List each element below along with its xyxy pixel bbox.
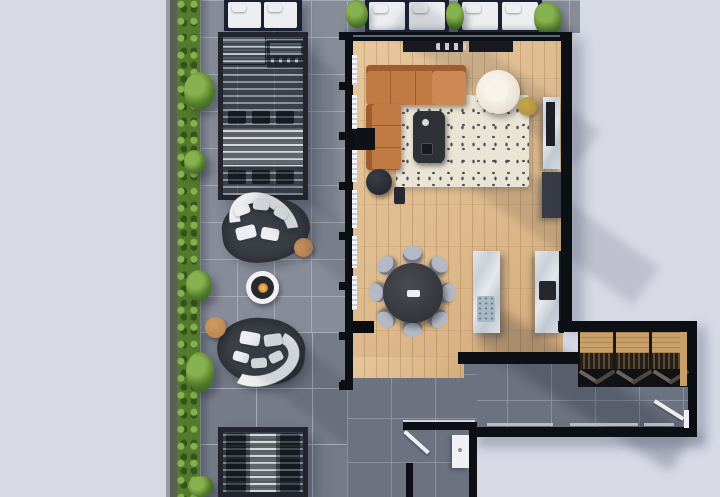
hedge-bush-4 <box>186 352 214 392</box>
sunbed-3-pillow <box>466 4 481 13</box>
dining-chair-top <box>403 246 422 263</box>
floorplan-render <box>0 0 720 497</box>
led-threshold-2 <box>570 423 638 426</box>
curtain-4 <box>352 190 357 228</box>
sectional-sofa-chaise <box>432 65 466 105</box>
floor-lamp <box>366 169 392 195</box>
planter-pot-3 <box>534 2 562 35</box>
vanity-basin <box>458 448 462 452</box>
boucle-armchair <box>476 70 520 114</box>
pergola-2 <box>218 427 308 497</box>
sunbed-3 <box>458 0 542 33</box>
speaker <box>394 187 405 204</box>
bathroom-right-wall <box>469 422 477 497</box>
hedge-bush-5 <box>188 476 214 497</box>
wardrobe-door-1b <box>595 369 616 384</box>
side-table-b <box>205 317 226 338</box>
hedge-bush-2 <box>184 150 206 174</box>
curtain-5 <box>352 236 357 268</box>
wardrobe-shelf <box>580 332 686 353</box>
led-threshold-3 <box>644 423 674 426</box>
curtain-3 <box>352 150 357 182</box>
coffee-table-tray <box>421 143 433 155</box>
wardrobe-door-2b <box>632 369 653 384</box>
armchair-seat <box>484 80 508 102</box>
hedge-bush-3 <box>186 270 212 301</box>
coffee-table-decor <box>422 119 429 126</box>
curtain-6 <box>352 276 357 310</box>
flame-icon <box>258 283 268 293</box>
wardrobe-unit <box>578 331 688 387</box>
sunbed-1-pillow <box>232 4 246 12</box>
fire-pit <box>246 271 279 304</box>
bottom-wall <box>472 427 697 437</box>
window-glass-line <box>352 35 560 37</box>
bathroom-top-wall <box>403 422 475 430</box>
sunbed-3-pillow-b <box>506 4 521 13</box>
olive-pouf <box>518 97 537 116</box>
window-decor <box>436 43 466 50</box>
wardrobe-right-wall <box>688 321 697 437</box>
kitchen-bottom-wall <box>458 352 580 364</box>
right-wall <box>561 32 572 324</box>
curtain-2 <box>352 95 357 129</box>
tv-console <box>352 128 375 150</box>
bathroom-vanity <box>452 435 469 468</box>
fireplace-column <box>543 97 560 169</box>
pergola-2-frame <box>218 427 308 497</box>
wardrobe-side-panel <box>680 332 687 386</box>
sunbed-1-pillow-b <box>268 4 282 12</box>
planter-pot-1 <box>346 0 368 28</box>
terrace-door-mat <box>350 321 374 333</box>
hedge-bush-1 <box>184 72 215 110</box>
bathroom-stub-wall <box>406 463 413 497</box>
media-console <box>542 172 563 218</box>
sunbed-2-pillow <box>373 4 388 13</box>
curtain-1 <box>352 55 357 85</box>
fireplace-inset <box>546 102 555 146</box>
table-centerpiece <box>407 290 420 297</box>
wardrobe-divider-2 <box>649 332 652 372</box>
planter-border <box>170 0 177 497</box>
wardrobe-divider-1 <box>613 332 616 372</box>
cooktop <box>539 281 556 300</box>
hall-door-edge <box>684 410 689 428</box>
led-threshold-1 <box>487 423 553 426</box>
wardrobe-clothes <box>580 353 686 369</box>
terrace-wall-endcap <box>341 380 353 390</box>
wood-floor-lower <box>352 356 464 378</box>
sunbed-1 <box>224 0 302 31</box>
left-wall-mullions <box>339 32 346 390</box>
kitchen-island <box>473 251 500 333</box>
island-sink <box>477 296 495 322</box>
dining-table <box>383 263 443 323</box>
pergola-1 <box>218 32 308 200</box>
coffee-table <box>413 111 445 163</box>
pergola-1-frame <box>218 32 308 200</box>
window-console-2 <box>469 41 513 52</box>
